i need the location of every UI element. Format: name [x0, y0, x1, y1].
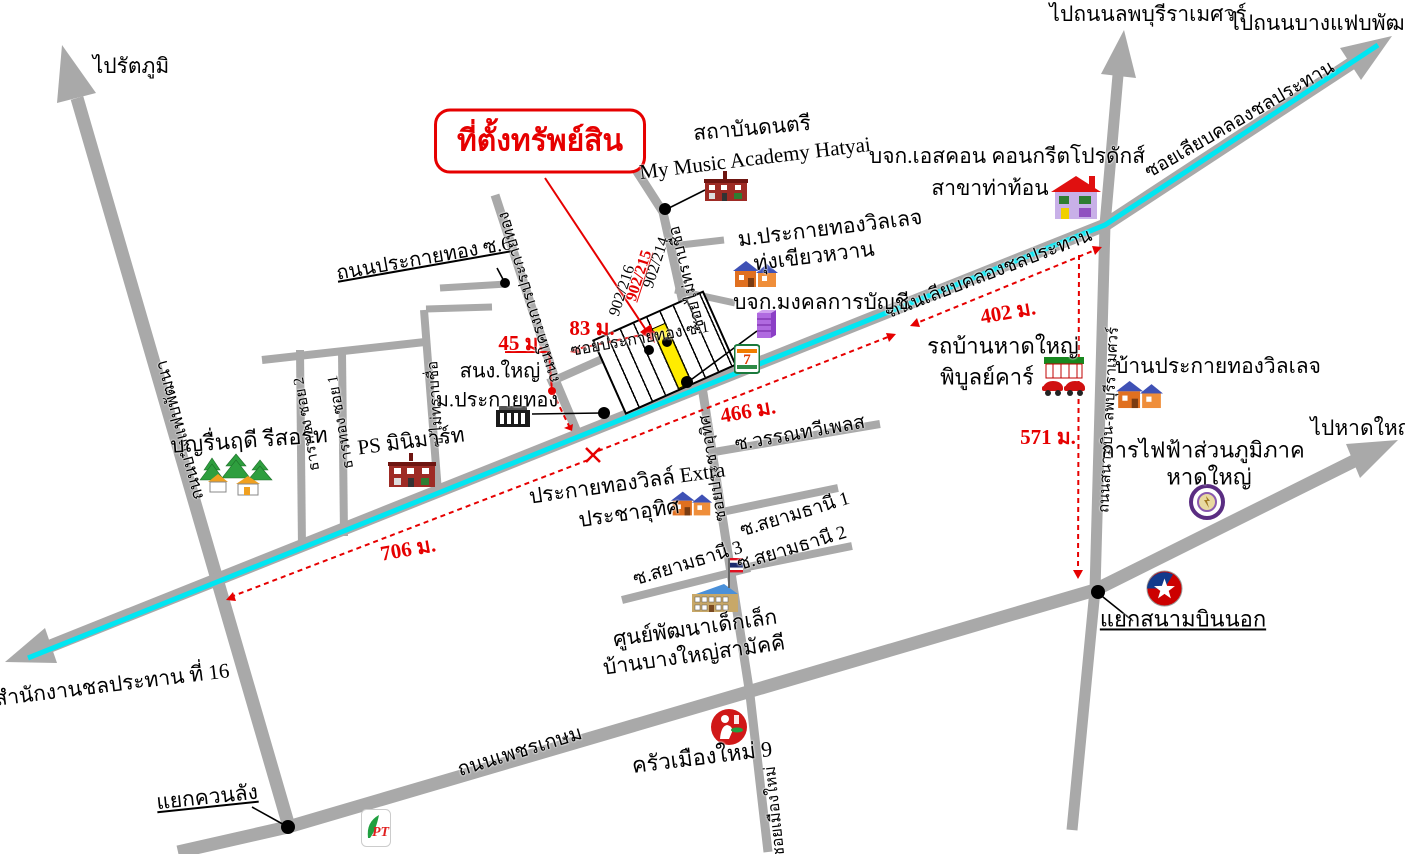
ps-minimart-building-icon [388, 451, 436, 488]
place-pea-line2: หาดใหญ่ [1166, 465, 1251, 488]
exit-bangfaep-label: ไปถนนบางแฟบพัฒนา [1229, 12, 1405, 34]
exit-lopburi-label: ไปถนนลพบุรีราเมศวร์ [1049, 3, 1246, 25]
junction-airport-label: แยกสนามบินนอก [1100, 607, 1266, 630]
banprakai-house-icon [1114, 378, 1164, 411]
place-rotban-line2: พิบูลย์คาร์ [940, 365, 1034, 388]
place-mongkol-label: บจก.มงคลการบัญชี [733, 291, 909, 313]
exit-rattaphum-label: ไปรัตภูมิ [93, 55, 170, 77]
place-escon-line2: สาขาท่าท้อน [931, 177, 1048, 199]
car-dealer-icon [1041, 357, 1087, 397]
caltex-logo-icon [1146, 570, 1183, 607]
distance-571m-label: 571 ม. [1020, 426, 1076, 448]
place-pea-line1: การไฟฟ้าส่วนภูมิภาค [1101, 438, 1304, 461]
measure-x-mark [586, 448, 600, 462]
seven-eleven-icon: 7 [734, 344, 760, 374]
place-head-office-line1: สนง.ใหญ่ [460, 362, 541, 383]
svg-text:7: 7 [743, 352, 751, 368]
property-location-box: ที่ตั้งทรัพย์สิน [434, 109, 646, 174]
escon-factory-icon [1049, 172, 1103, 222]
pt-station-logo-icon: PT [361, 809, 391, 847]
exit-hatyai-label: ไปหาดใหญ่ [1310, 417, 1405, 439]
property-location-title: ที่ตั้งทรัพย์สิน [457, 125, 623, 158]
property-pointer-line [545, 178, 648, 333]
place-escon-line1: บจก.เอสคอน คอนกรีตโปรดักส์ [869, 145, 1145, 167]
place-rotban-line1: รถบ้านหาดใหญ่ [927, 334, 1079, 357]
place-head-office-line2: ม.ประกายทอง [436, 391, 558, 412]
resort-trees-icon [196, 452, 276, 497]
property-location-map: 7 PT ที่ตั้งทรัพย์สิน ไปรัตภูมิ [0, 0, 1405, 854]
place-banprakai-label: บ้านประกายทองวิลเลจ [1115, 355, 1321, 377]
svg-text:PT: PT [372, 825, 391, 840]
